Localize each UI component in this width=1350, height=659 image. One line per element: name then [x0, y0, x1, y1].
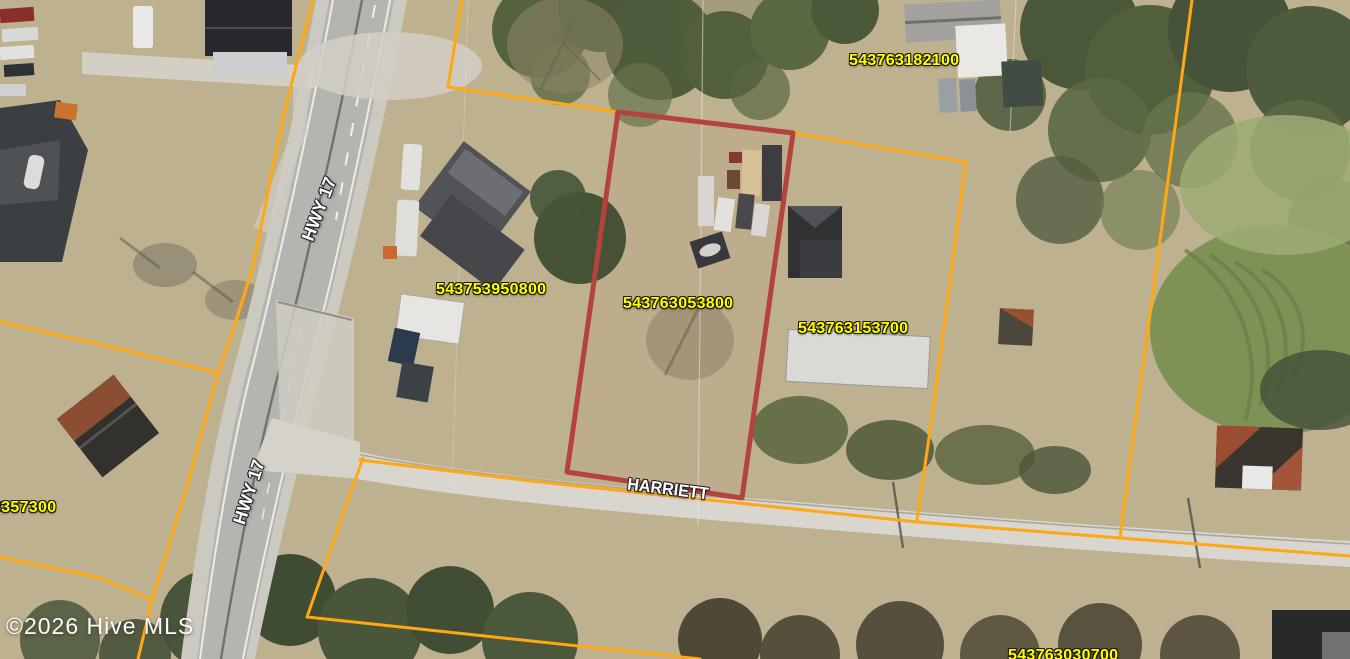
- aerial-parcel-map[interactable]: 543763182100 543753950800 543763053800 5…: [0, 0, 1350, 659]
- parcel-label-543763182100: 543763182100: [849, 53, 959, 69]
- parcel-label-543763153700: 543763153700: [798, 321, 908, 337]
- attribution-watermark: ©2026 Hive MLS: [6, 613, 194, 640]
- parcel-label-543763053800-highlighted: 543763053800: [623, 296, 733, 312]
- parcel-label-8357300-partial: 8357300: [0, 500, 56, 516]
- map-graphics: [0, 0, 1350, 659]
- parcel-label-543753950800: 543753950800: [436, 282, 546, 298]
- parcel-label-543763030700-partial: 543763030700: [1008, 648, 1118, 659]
